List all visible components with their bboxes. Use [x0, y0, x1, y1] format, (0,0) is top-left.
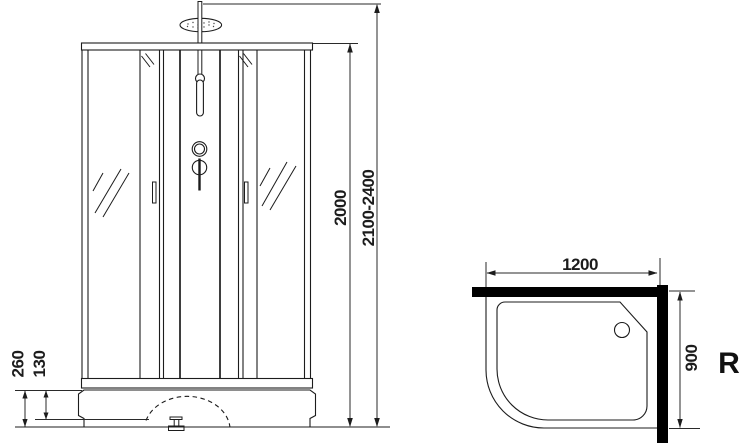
- top-dimensions: 1200 900 R: [486, 255, 740, 429]
- shower-pole: [198, 2, 202, 78]
- wall-right: [657, 285, 668, 443]
- control-knob: [192, 142, 207, 157]
- depth-label: 900: [682, 345, 701, 372]
- cabin-top-frame: [82, 43, 313, 50]
- drawing-svg: 2100-2400 2000 260 130: [0, 0, 747, 448]
- cabin-height-label: 2000: [331, 190, 350, 226]
- cabin-bottom-rail: [82, 379, 313, 389]
- mixer-lever: [192, 159, 206, 191]
- wall-top: [472, 287, 658, 297]
- dimension-total-height: 2100-2400: [203, 4, 381, 427]
- tray-outer-outline: [486, 297, 657, 428]
- shower-tray-front: [79, 390, 316, 427]
- orientation-label: R: [718, 347, 740, 380]
- top-view: [472, 285, 668, 443]
- drain-hole: [615, 323, 630, 338]
- front-dimensions: 2100-2400 2000 260 130: [9, 4, 382, 427]
- tray-inner-outline: [497, 302, 647, 420]
- hand-shower: [196, 74, 205, 116]
- tray-step-label: 130: [30, 351, 49, 378]
- tray-height-label: 260: [9, 351, 28, 378]
- dimension-tray-step: 130: [30, 351, 49, 420]
- dimension-depth: 900: [669, 291, 701, 429]
- width-label: 1200: [562, 255, 598, 274]
- dimension-cabin-height: 2000: [313, 44, 358, 428]
- total-height-label: 2100-2400: [359, 170, 378, 247]
- glass-hatch-marks: [93, 54, 296, 218]
- dimension-width: 1200: [486, 255, 660, 287]
- shower-cabin-technical-drawing: 2100-2400 2000 260 130: [0, 0, 747, 448]
